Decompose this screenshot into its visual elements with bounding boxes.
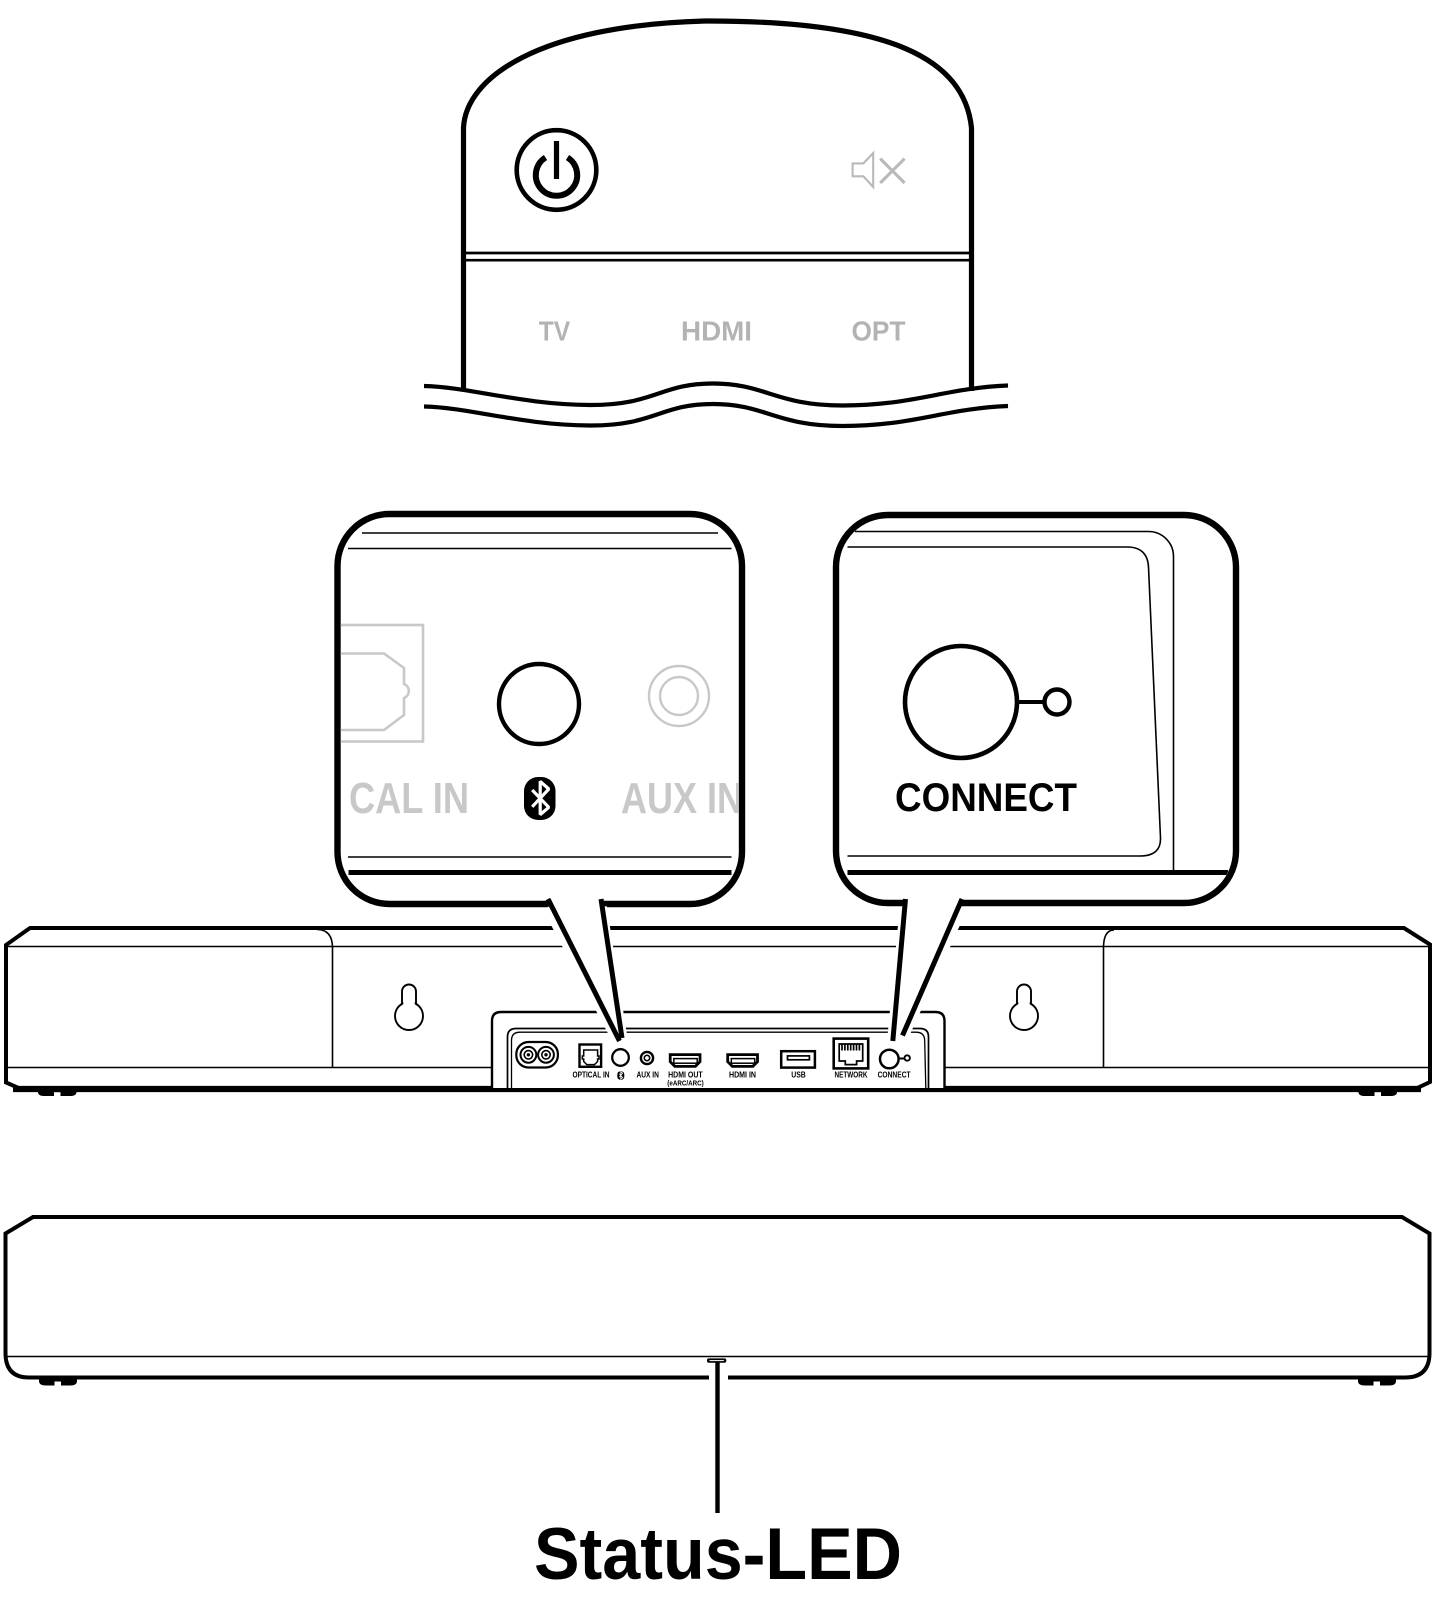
- svg-text:(eARC/ARC): (eARC/ARC): [667, 1079, 704, 1088]
- svg-text:OPTICAL IN: OPTICAL IN: [573, 1069, 610, 1079]
- svg-text:OPT: OPT: [852, 316, 906, 347]
- svg-text:TV: TV: [539, 316, 571, 347]
- svg-text:USB: USB: [791, 1069, 806, 1079]
- svg-text:HDMI: HDMI: [681, 316, 752, 347]
- svg-text:CONNECT: CONNECT: [895, 776, 1077, 820]
- svg-text:AUX IN: AUX IN: [636, 1069, 659, 1079]
- svg-text:Status-LED: Status-LED: [534, 1514, 902, 1595]
- svg-text:CONNECT: CONNECT: [878, 1069, 912, 1079]
- svg-text:HDMI IN: HDMI IN: [729, 1069, 756, 1079]
- svg-text:NETWORK: NETWORK: [835, 1069, 868, 1079]
- svg-text:AUX IN: AUX IN: [621, 775, 743, 823]
- svg-text:CAL IN: CAL IN: [349, 775, 469, 823]
